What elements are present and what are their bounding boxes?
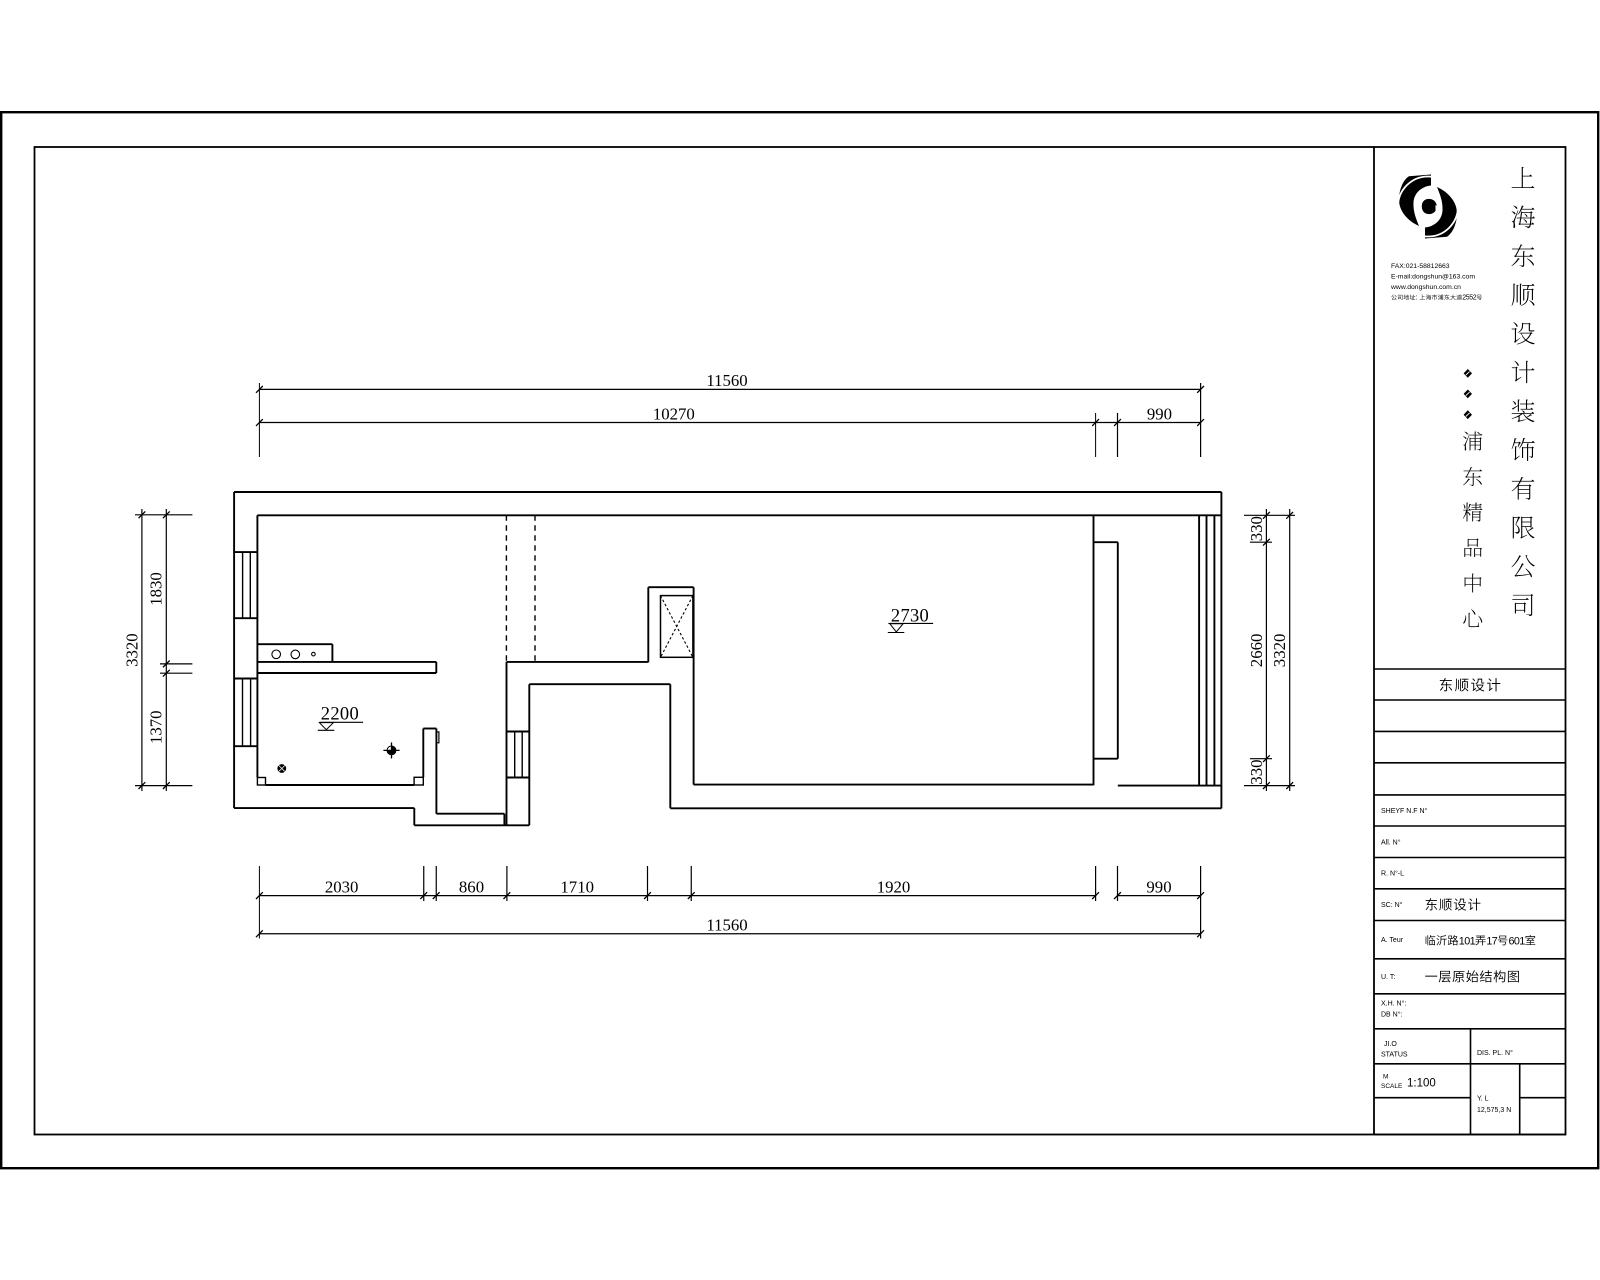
svg-text:M: M [1383, 1074, 1388, 1081]
svg-text:SHEYF N.F N°: SHEYF N.F N° [1381, 807, 1428, 815]
svg-text:990: 990 [1146, 877, 1171, 896]
svg-text:1:100: 1:100 [1407, 1078, 1436, 1090]
svg-text:STATUS: STATUS [1381, 1052, 1408, 1059]
svg-text:11560: 11560 [706, 371, 747, 390]
svg-text:2030: 2030 [325, 877, 359, 896]
svg-text:1710: 1710 [560, 877, 594, 896]
svg-text:www.dongshun.com.cn: www.dongshun.com.cn [1390, 284, 1461, 291]
svg-text:7: 7 [1492, 936, 1498, 948]
svg-text:2200: 2200 [321, 705, 359, 725]
svg-text:12,575,3 N: 12,575,3 N [1477, 1107, 1511, 1114]
svg-text:R. N°-L: R. N°-L [1381, 870, 1404, 878]
svg-text:A. Teur: A. Teur [1381, 937, 1404, 944]
svg-text:11560: 11560 [706, 916, 747, 935]
svg-text:Y. L: Y. L [1477, 1096, 1489, 1103]
svg-text:1: 1 [1470, 936, 1476, 948]
svg-text:JI.O: JI.O [1384, 1041, 1397, 1048]
svg-text:1370: 1370 [147, 710, 166, 744]
svg-text:2660: 2660 [1247, 634, 1266, 668]
svg-text:330: 330 [1247, 760, 1266, 785]
svg-text:1: 1 [1519, 936, 1525, 948]
svg-text:990: 990 [1147, 404, 1172, 423]
svg-text::: : [1416, 295, 1418, 302]
svg-text:3320: 3320 [122, 633, 141, 667]
svg-text:1830: 1830 [147, 572, 166, 606]
svg-text:FAX:021-58812663: FAX:021-58812663 [1391, 263, 1450, 270]
svg-text:3320: 3320 [1270, 634, 1289, 668]
svg-text:U. T:: U. T: [1381, 974, 1395, 981]
svg-text:860: 860 [459, 877, 484, 896]
svg-text:10270: 10270 [653, 404, 695, 423]
svg-text:1920: 1920 [877, 877, 911, 896]
svg-text:DB N°:: DB N°: [1381, 1011, 1403, 1019]
svg-text:DIS. PL. N°: DIS. PL. N° [1477, 1049, 1513, 1057]
svg-text:2: 2 [1473, 295, 1477, 302]
svg-text:SC: N°: SC: N° [1381, 901, 1403, 909]
svg-text:X.H. N°:: X.H. N°: [1381, 1000, 1406, 1008]
svg-text:E-mail:dongshun@163.com: E-mail:dongshun@163.com [1391, 274, 1475, 281]
svg-text:330: 330 [1247, 516, 1266, 541]
svg-text:All. N°: All. N° [1381, 838, 1401, 846]
svg-text:SCALE: SCALE [1381, 1083, 1403, 1090]
